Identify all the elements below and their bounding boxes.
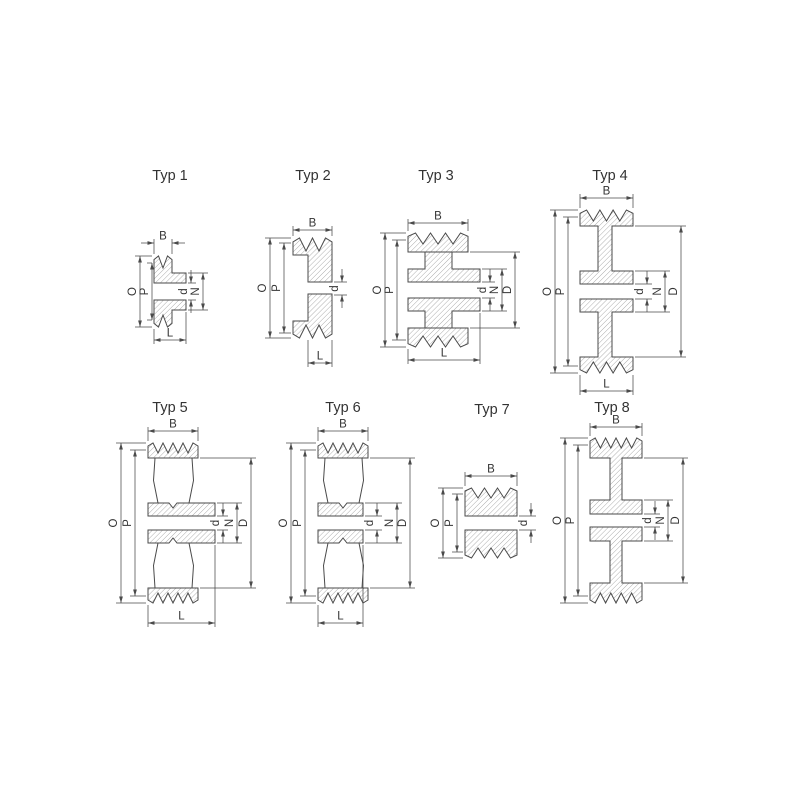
dimension-L: L: [308, 340, 332, 367]
dim-label: P: [122, 519, 134, 527]
dim-label: D: [668, 287, 680, 295]
pulley-section-view: [148, 443, 215, 603]
dim-label: d: [178, 288, 190, 294]
dim-label: D: [502, 286, 514, 294]
dimension-P: P: [555, 217, 578, 366]
dim-label: d: [642, 517, 654, 523]
dimension-P: P: [122, 450, 146, 596]
pulley-cross-section: [154, 256, 186, 283]
dimension-B: B: [408, 211, 468, 232]
technical-drawing: Typ 1BOPdNL Typ 2BOPdL Typ 3BOPdNDL Typ …: [0, 0, 800, 800]
figure-typ4: Typ 4BOPdNDL: [542, 168, 686, 395]
pulley-section-view: [465, 488, 517, 558]
pulley-cross-section: [580, 299, 633, 373]
pulley-section-view: [293, 238, 332, 338]
pulley-cross-section: [154, 300, 186, 327]
pulley-cross-section: [148, 503, 215, 516]
pulley-cross-section: [590, 438, 642, 514]
dim-label: B: [434, 211, 442, 223]
figure-typ5: Typ 5BOPdNDL: [108, 400, 256, 627]
dimension-P: P: [271, 243, 291, 333]
dim-label: d: [210, 520, 222, 526]
dimension-L: L: [580, 375, 633, 395]
dim-label: P: [384, 286, 396, 294]
pulley-cross-section: [408, 233, 468, 252]
dim-label: N: [384, 519, 396, 527]
pulley-cross-section: [189, 458, 194, 503]
dimension-B: B: [318, 419, 368, 442]
pulley-cross-section: [148, 530, 215, 543]
dim-label: B: [159, 231, 167, 243]
dim-label: d: [364, 520, 376, 526]
figure-typ8: Typ 8BOPdND: [552, 400, 688, 603]
pulley-cross-section: [148, 443, 198, 458]
dimension-B: B: [148, 419, 198, 442]
dim-label: D: [238, 519, 250, 527]
figure-title: Typ 3: [418, 168, 453, 184]
dim-label: O: [108, 518, 120, 527]
dim-label: B: [487, 464, 495, 476]
dim-label: d: [329, 285, 341, 291]
dimension-L: L: [148, 545, 215, 627]
dimension-P: P: [384, 240, 406, 340]
pulley-cross-section: [359, 458, 364, 503]
dim-label: B: [309, 218, 317, 230]
pulley-section-view: [590, 438, 642, 603]
dim-label: O: [552, 516, 564, 525]
dim-label: P: [292, 519, 304, 527]
dim-label: B: [339, 419, 347, 431]
dim-label: L: [178, 611, 185, 623]
pulley-cross-section: [465, 488, 517, 516]
dim-label: B: [612, 415, 620, 427]
pulley-section-view: [580, 210, 633, 373]
pulley-cross-section: [293, 238, 332, 282]
dim-label: B: [603, 186, 611, 198]
pulley-cross-section: [590, 527, 642, 603]
dim-label: N: [489, 286, 501, 294]
dim-label: P: [139, 287, 151, 295]
pulley-types-diagram: Typ 1BOPdNL Typ 2BOPdL Typ 3BOPdNDL Typ …: [0, 0, 800, 800]
dim-label: N: [652, 287, 664, 295]
pulley-cross-section: [154, 458, 159, 503]
dim-label: d: [518, 520, 530, 526]
pulley-cross-section: [189, 543, 194, 588]
figure-title: Typ 1: [152, 168, 187, 184]
pulley-cross-section: [318, 588, 368, 603]
dim-label: P: [271, 284, 283, 292]
dim-label: N: [224, 519, 236, 527]
dimension-d: d: [634, 271, 652, 312]
dim-label: P: [555, 287, 567, 295]
dim-label: N: [190, 287, 202, 295]
pulley-cross-section: [408, 328, 468, 347]
dimension-d: d: [364, 503, 382, 543]
figure-typ6: Typ 6BOPdNDL: [278, 400, 415, 627]
dimension-B: B: [141, 231, 185, 255]
figure-typ3: Typ 3BOPdNDL: [372, 168, 520, 364]
dim-label: P: [444, 519, 456, 527]
dim-label: B: [169, 419, 177, 431]
dimension-B: B: [590, 415, 642, 437]
pulley-cross-section: [408, 298, 480, 328]
dim-label: O: [127, 287, 139, 296]
dimension-B: B: [465, 464, 517, 487]
dimension-P: P: [444, 494, 463, 552]
dim-label: D: [670, 516, 682, 524]
pulley-cross-section: [324, 543, 329, 588]
dim-label: D: [397, 519, 409, 527]
dim-label: O: [257, 283, 269, 292]
figure-typ7: Typ 7BOPd: [430, 402, 536, 558]
dim-label: N: [655, 516, 667, 524]
dim-label: L: [167, 328, 174, 340]
figure-title: Typ 4: [592, 168, 627, 184]
pulley-cross-section: [580, 210, 633, 284]
dim-label: d: [634, 288, 646, 294]
pulley-cross-section: [148, 588, 198, 603]
pulley-cross-section: [154, 543, 159, 588]
figure-title: Typ 6: [325, 400, 360, 416]
pulley-cross-section: [408, 252, 480, 282]
dim-label: L: [603, 379, 610, 391]
pulley-cross-section: [293, 294, 332, 338]
pulley-cross-section: [318, 503, 363, 516]
figure-typ1: Typ 1BOPdNL: [127, 168, 208, 344]
dim-label: O: [542, 287, 554, 296]
pulley-section-view: [408, 233, 480, 347]
figure-title: Typ 5: [152, 400, 187, 416]
dim-label: d: [477, 287, 489, 293]
dim-label: O: [430, 518, 442, 527]
dimension-P: P: [139, 263, 154, 320]
pulley-cross-section: [318, 530, 363, 543]
dim-label: O: [278, 518, 290, 527]
dimension-B: B: [580, 186, 633, 209]
pulley-cross-section: [324, 458, 329, 503]
pulley-cross-section: [465, 530, 517, 558]
dim-label: O: [372, 285, 384, 294]
figure-title: Typ 7: [474, 402, 509, 418]
dimension-P: P: [565, 445, 588, 596]
pulley-section-view: [318, 443, 368, 603]
dim-label: P: [565, 516, 577, 524]
dim-label: L: [441, 348, 448, 360]
dimension-d: d: [518, 503, 536, 543]
figure-title: Typ 2: [295, 168, 330, 184]
dimension-P: P: [292, 450, 316, 596]
dimension-B: B: [293, 218, 332, 237]
figure-typ2: Typ 2BOPdL: [257, 168, 347, 367]
dim-label: L: [337, 611, 344, 623]
pulley-cross-section: [318, 443, 368, 458]
dim-label: L: [317, 351, 324, 363]
